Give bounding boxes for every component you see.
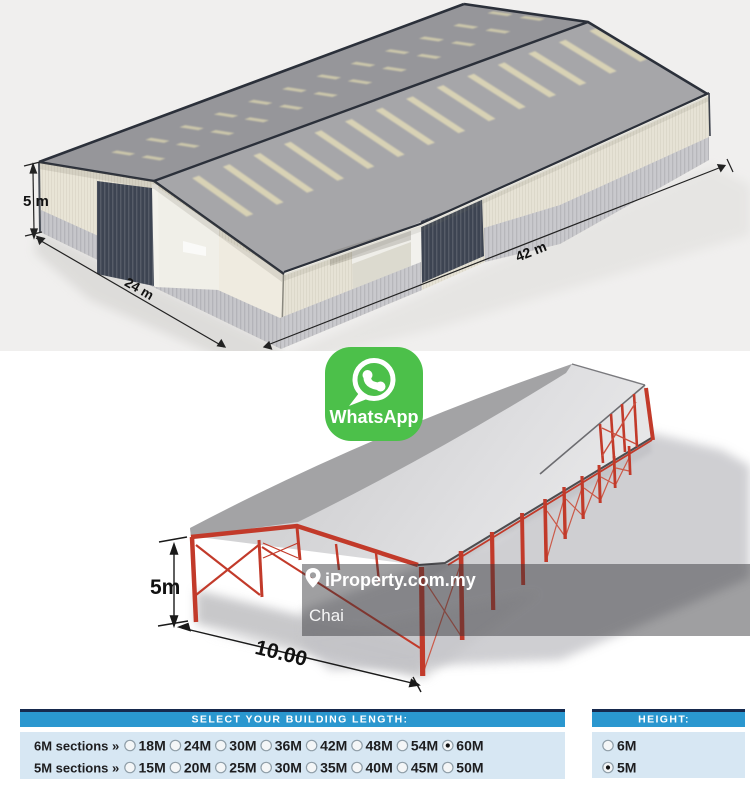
svg-text:20M: 20M [184, 760, 211, 776]
svg-text:42M: 42M [320, 738, 347, 754]
svg-text:40M: 40M [366, 760, 393, 776]
svg-text:50M: 50M [456, 760, 483, 776]
svg-text:HEIGHT:: HEIGHT: [638, 714, 690, 726]
svg-text:iProperty.com.my: iProperty.com.my [325, 570, 476, 590]
svg-text:18M: 18M [139, 738, 166, 754]
svg-text:24M: 24M [184, 738, 211, 754]
svg-text:35M: 35M [320, 760, 347, 776]
svg-text:36M: 36M [275, 738, 302, 754]
svg-text:54M: 54M [411, 738, 438, 754]
svg-text:5M: 5M [617, 760, 636, 776]
svg-text:30M: 30M [229, 738, 256, 754]
svg-text:5 m: 5 m [23, 193, 49, 210]
svg-text:25M: 25M [229, 760, 256, 776]
svg-text:6M sections »: 6M sections » [34, 739, 119, 754]
svg-text:SELECT YOUR BUILDING LENGTH:: SELECT YOUR BUILDING LENGTH: [192, 714, 409, 726]
svg-text:15M: 15M [139, 760, 166, 776]
svg-text:6M: 6M [617, 738, 636, 754]
svg-text:45M: 45M [411, 760, 438, 776]
svg-text:WhatsApp: WhatsApp [330, 407, 419, 427]
svg-text:48M: 48M [366, 738, 393, 754]
svg-text:5M sections »: 5M sections » [34, 761, 119, 776]
svg-text:60M: 60M [456, 738, 483, 754]
svg-text:5m: 5m [150, 576, 180, 599]
svg-text:Chai: Chai [309, 606, 344, 625]
svg-text:30M: 30M [275, 760, 302, 776]
